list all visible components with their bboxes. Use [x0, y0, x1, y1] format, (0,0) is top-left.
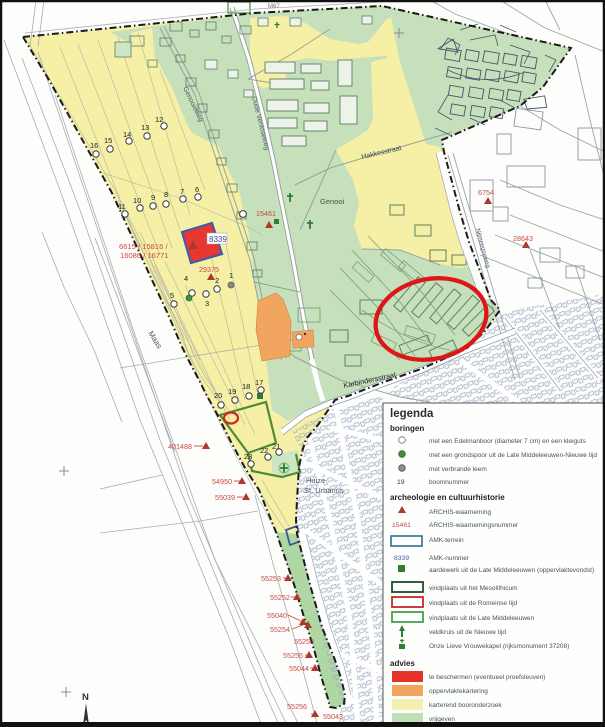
svg-text:boomnummer: boomnummer — [429, 479, 470, 486]
svg-text:Huize: Huize — [306, 476, 325, 485]
svg-text:Onze Lieve Vrouwekapel (rijksm: Onze Lieve Vrouwekapel (rijksmonument 37… — [429, 643, 569, 650]
svg-text:18: 18 — [242, 382, 250, 391]
svg-text:AMK-terrein: AMK-terrein — [429, 537, 464, 544]
svg-text:55253: 55253 — [261, 574, 281, 583]
svg-text:4: 4 — [184, 274, 188, 283]
svg-text:55252: 55252 — [270, 593, 290, 602]
svg-text:6: 6 — [195, 185, 199, 194]
svg-text:10: 10 — [133, 196, 141, 205]
svg-text:21: 21 — [272, 442, 280, 451]
svg-text:19: 19 — [228, 387, 236, 396]
svg-text:M67: M67 — [268, 4, 280, 10]
svg-text:met verbrande leem: met verbrande leem — [429, 466, 487, 473]
svg-text:AMK-nummer: AMK-nummer — [429, 555, 470, 562]
svg-text:28643: 28643 — [513, 234, 533, 243]
svg-text:legenda: legenda — [390, 408, 434, 420]
svg-text:2: 2 — [215, 276, 219, 285]
svg-text:karterend booronderzoek: karterend booronderzoek — [429, 702, 502, 709]
svg-text:N: N — [82, 692, 89, 703]
svg-text:55043: 55043 — [323, 712, 343, 721]
svg-text:3: 3 — [205, 299, 209, 308]
svg-text:te beschermen (eventueel proef: te beschermen (eventueel proefsleuven) — [429, 674, 545, 681]
svg-text:Genooi: Genooi — [320, 197, 345, 206]
svg-text:14: 14 — [123, 130, 131, 139]
svg-text:8: 8 — [164, 190, 168, 199]
svg-text:7: 7 — [180, 187, 184, 196]
svg-text:St. Urbanus: St. Urbanus — [304, 486, 344, 495]
svg-text:6754: 6754 — [478, 188, 494, 197]
svg-text:vrijgeven: vrijgeven — [429, 716, 455, 723]
svg-text:55253: 55253 — [294, 637, 314, 646]
svg-text:aardewerk uit de Late Middelee: aardewerk uit de Late Middeleeuwen (oppe… — [429, 567, 594, 574]
svg-text:8339: 8339 — [209, 235, 227, 244]
svg-text:23: 23 — [244, 452, 252, 461]
svg-text:17: 17 — [255, 378, 263, 387]
svg-text:archeologie en cultuurhistorie: archeologie en cultuurhistorie — [390, 493, 505, 502]
svg-text:55040: 55040 — [267, 611, 287, 620]
svg-text:11: 11 — [118, 202, 126, 211]
svg-text:6615 / 15816 /: 6615 / 15816 / — [119, 242, 168, 251]
svg-text:1: 1 — [229, 271, 233, 280]
svg-text:19: 19 — [397, 479, 405, 486]
svg-text:54950: 54950 — [212, 477, 232, 486]
svg-text:55256: 55256 — [287, 702, 307, 711]
svg-text:veldkruis uit de Nieuwe tijd: veldkruis uit de Nieuwe tijd — [429, 629, 506, 636]
svg-text:boringen: boringen — [390, 424, 424, 433]
svg-text:13: 13 — [141, 123, 149, 132]
svg-text:9: 9 — [151, 193, 155, 202]
svg-text:401488: 401488 — [168, 442, 192, 451]
svg-text:16: 16 — [90, 141, 98, 150]
svg-text:16086 / 16771: 16086 / 16771 — [120, 251, 169, 260]
svg-text:vindplaats uit de Romeinse tij: vindplaats uit de Romeinse tijd — [429, 600, 518, 607]
svg-text:20: 20 — [214, 391, 222, 400]
svg-text:5: 5 — [170, 291, 174, 300]
svg-text:22: 22 — [260, 446, 268, 455]
svg-text:oppervlaktekartering: oppervlaktekartering — [429, 688, 488, 695]
svg-text:12: 12 — [155, 115, 163, 124]
svg-text:met een Edelmanboor (diameter: met een Edelmanboor (diameter 7 cm) en e… — [429, 438, 587, 445]
svg-text:29375: 29375 — [199, 265, 219, 274]
svg-text:8339: 8339 — [394, 555, 409, 562]
svg-text:55254: 55254 — [270, 625, 290, 634]
svg-text:15461: 15461 — [256, 209, 276, 218]
svg-text:vindplaats uit het Mesolithicu: vindplaats uit het Mesolithicum — [429, 585, 518, 592]
svg-text:ARCHIS-waarneming: ARCHIS-waarneming — [429, 509, 492, 516]
svg-text:advies: advies — [390, 659, 415, 668]
svg-text:met een grondspoor uit de Late: met een grondspoor uit de Late Middeleeu… — [429, 452, 597, 459]
svg-text:15: 15 — [104, 136, 112, 145]
svg-text:55044: 55044 — [289, 664, 309, 673]
svg-text:vindplaats uit de Late Middele: vindplaats uit de Late Middeleeuwen — [429, 615, 535, 622]
svg-text:55039: 55039 — [215, 493, 235, 502]
svg-text:55255: 55255 — [283, 651, 303, 660]
svg-text:15461: 15461 — [392, 522, 411, 529]
svg-text:ARCHIS-waarnemingsnummer: ARCHIS-waarnemingsnummer — [429, 522, 519, 529]
